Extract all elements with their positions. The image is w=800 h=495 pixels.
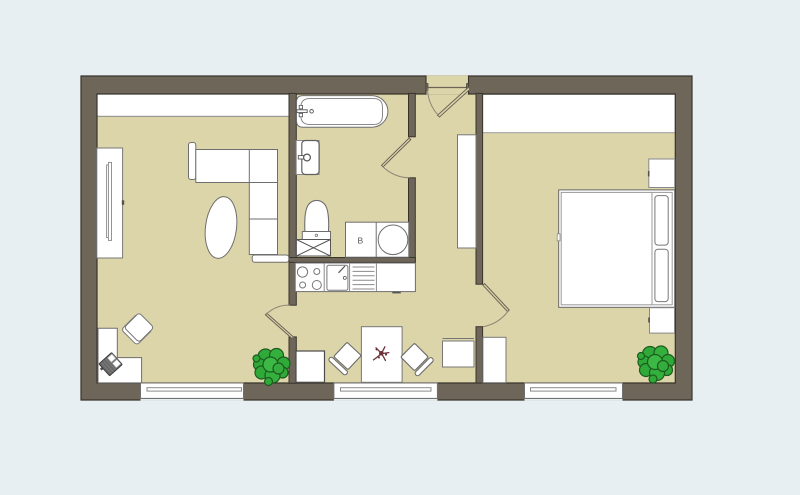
svg-text:B: B (358, 236, 364, 246)
